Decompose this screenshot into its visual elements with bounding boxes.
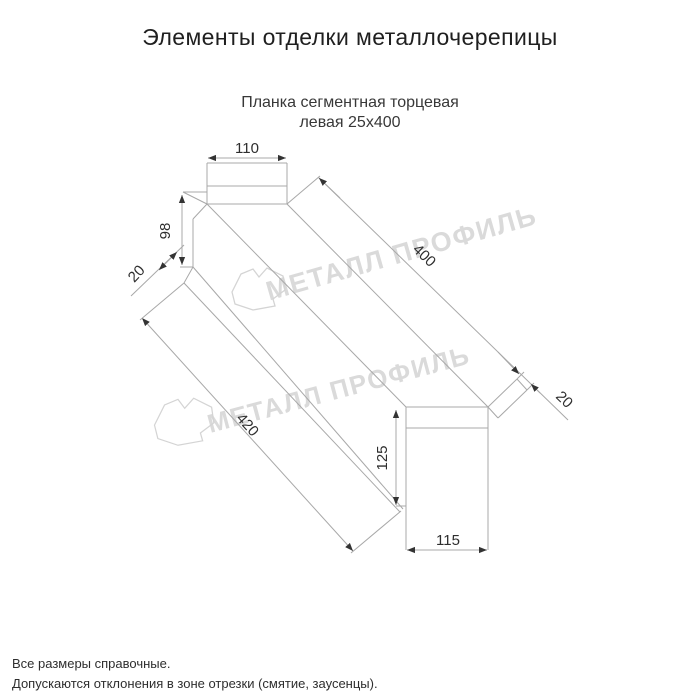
watermark-logo-icon xyxy=(154,398,213,445)
dimension-labels: 110 98 20 400 420 20 125 115 xyxy=(125,140,576,549)
footer-note-1: Все размеры справочные. xyxy=(12,654,378,674)
dim-label-top-width: 110 xyxy=(235,140,259,157)
catalog-page: Элементы отделки металлочерепицы Планка … xyxy=(0,0,700,700)
dim-label-end-width: 115 xyxy=(436,532,460,549)
footer-note-2: Допускаются отклонения в зоне отрезки (с… xyxy=(12,674,378,694)
dim-label-side-height: 98 xyxy=(157,223,174,240)
watermark-text-upper: МЕТАЛЛ ПРОФИЛЬ xyxy=(263,200,541,306)
dim-label-end-height: 125 xyxy=(374,445,391,470)
technical-drawing: МЕТАЛЛ ПРОФИЛЬ МЕТАЛЛ ПРОФИЛЬ xyxy=(0,0,700,700)
watermark-layer: МЕТАЛЛ ПРОФИЛЬ МЕТАЛЛ ПРОФИЛЬ xyxy=(154,200,540,445)
footer-notes: Все размеры справочные. Допускаются откл… xyxy=(12,654,378,694)
